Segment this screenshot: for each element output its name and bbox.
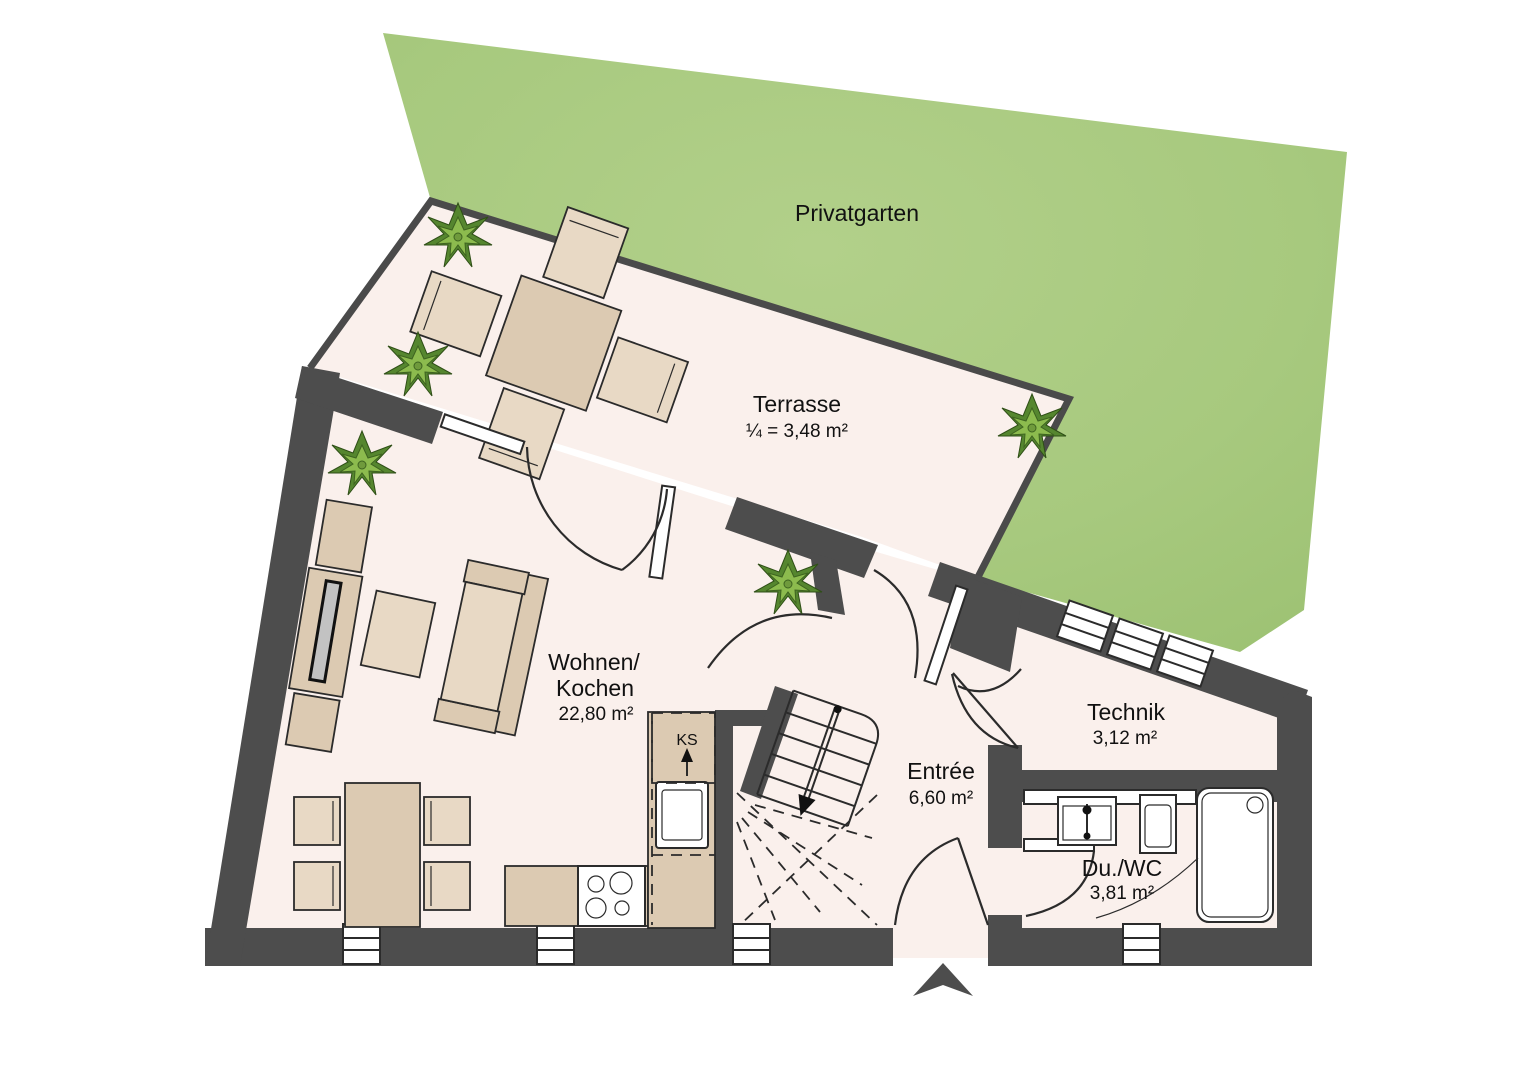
floor-plan-page: Privatgarten Terrasse ¼ = 3,48 m²	[0, 0, 1528, 1080]
window-bath	[1123, 924, 1160, 964]
entree-label: Entrée	[907, 758, 975, 784]
bath-label: Du./WC	[1082, 855, 1163, 881]
toilet-icon	[1140, 795, 1176, 853]
living-label-line2: Kochen	[556, 675, 634, 701]
washbasin-icon	[1058, 797, 1116, 845]
terrace-label: Terrasse	[753, 391, 841, 417]
terrace-area-value: ¼ = 3,48 m²	[746, 421, 848, 442]
sink-icon	[656, 782, 708, 848]
bath-area-value: 3,81 m²	[1090, 883, 1154, 904]
entree-area-value: 6,60 m²	[909, 788, 973, 809]
floor-plan-svg: Privatgarten Terrasse ¼ = 3,48 m²	[0, 0, 1528, 1080]
technik-label: Technik	[1087, 699, 1165, 725]
living-label-line1: Wohnen/	[548, 649, 640, 675]
technik-area-value: 3,12 m²	[1093, 728, 1157, 749]
living-area-value: 22,80 m²	[559, 704, 634, 725]
garden-label: Privatgarten	[795, 200, 919, 226]
window-stair	[733, 924, 770, 964]
window-kitchen	[537, 924, 574, 964]
window-living	[343, 924, 380, 964]
fridge-label: KS	[676, 732, 697, 749]
stove-icon	[578, 866, 645, 926]
entrance-arrow-icon	[913, 963, 973, 996]
